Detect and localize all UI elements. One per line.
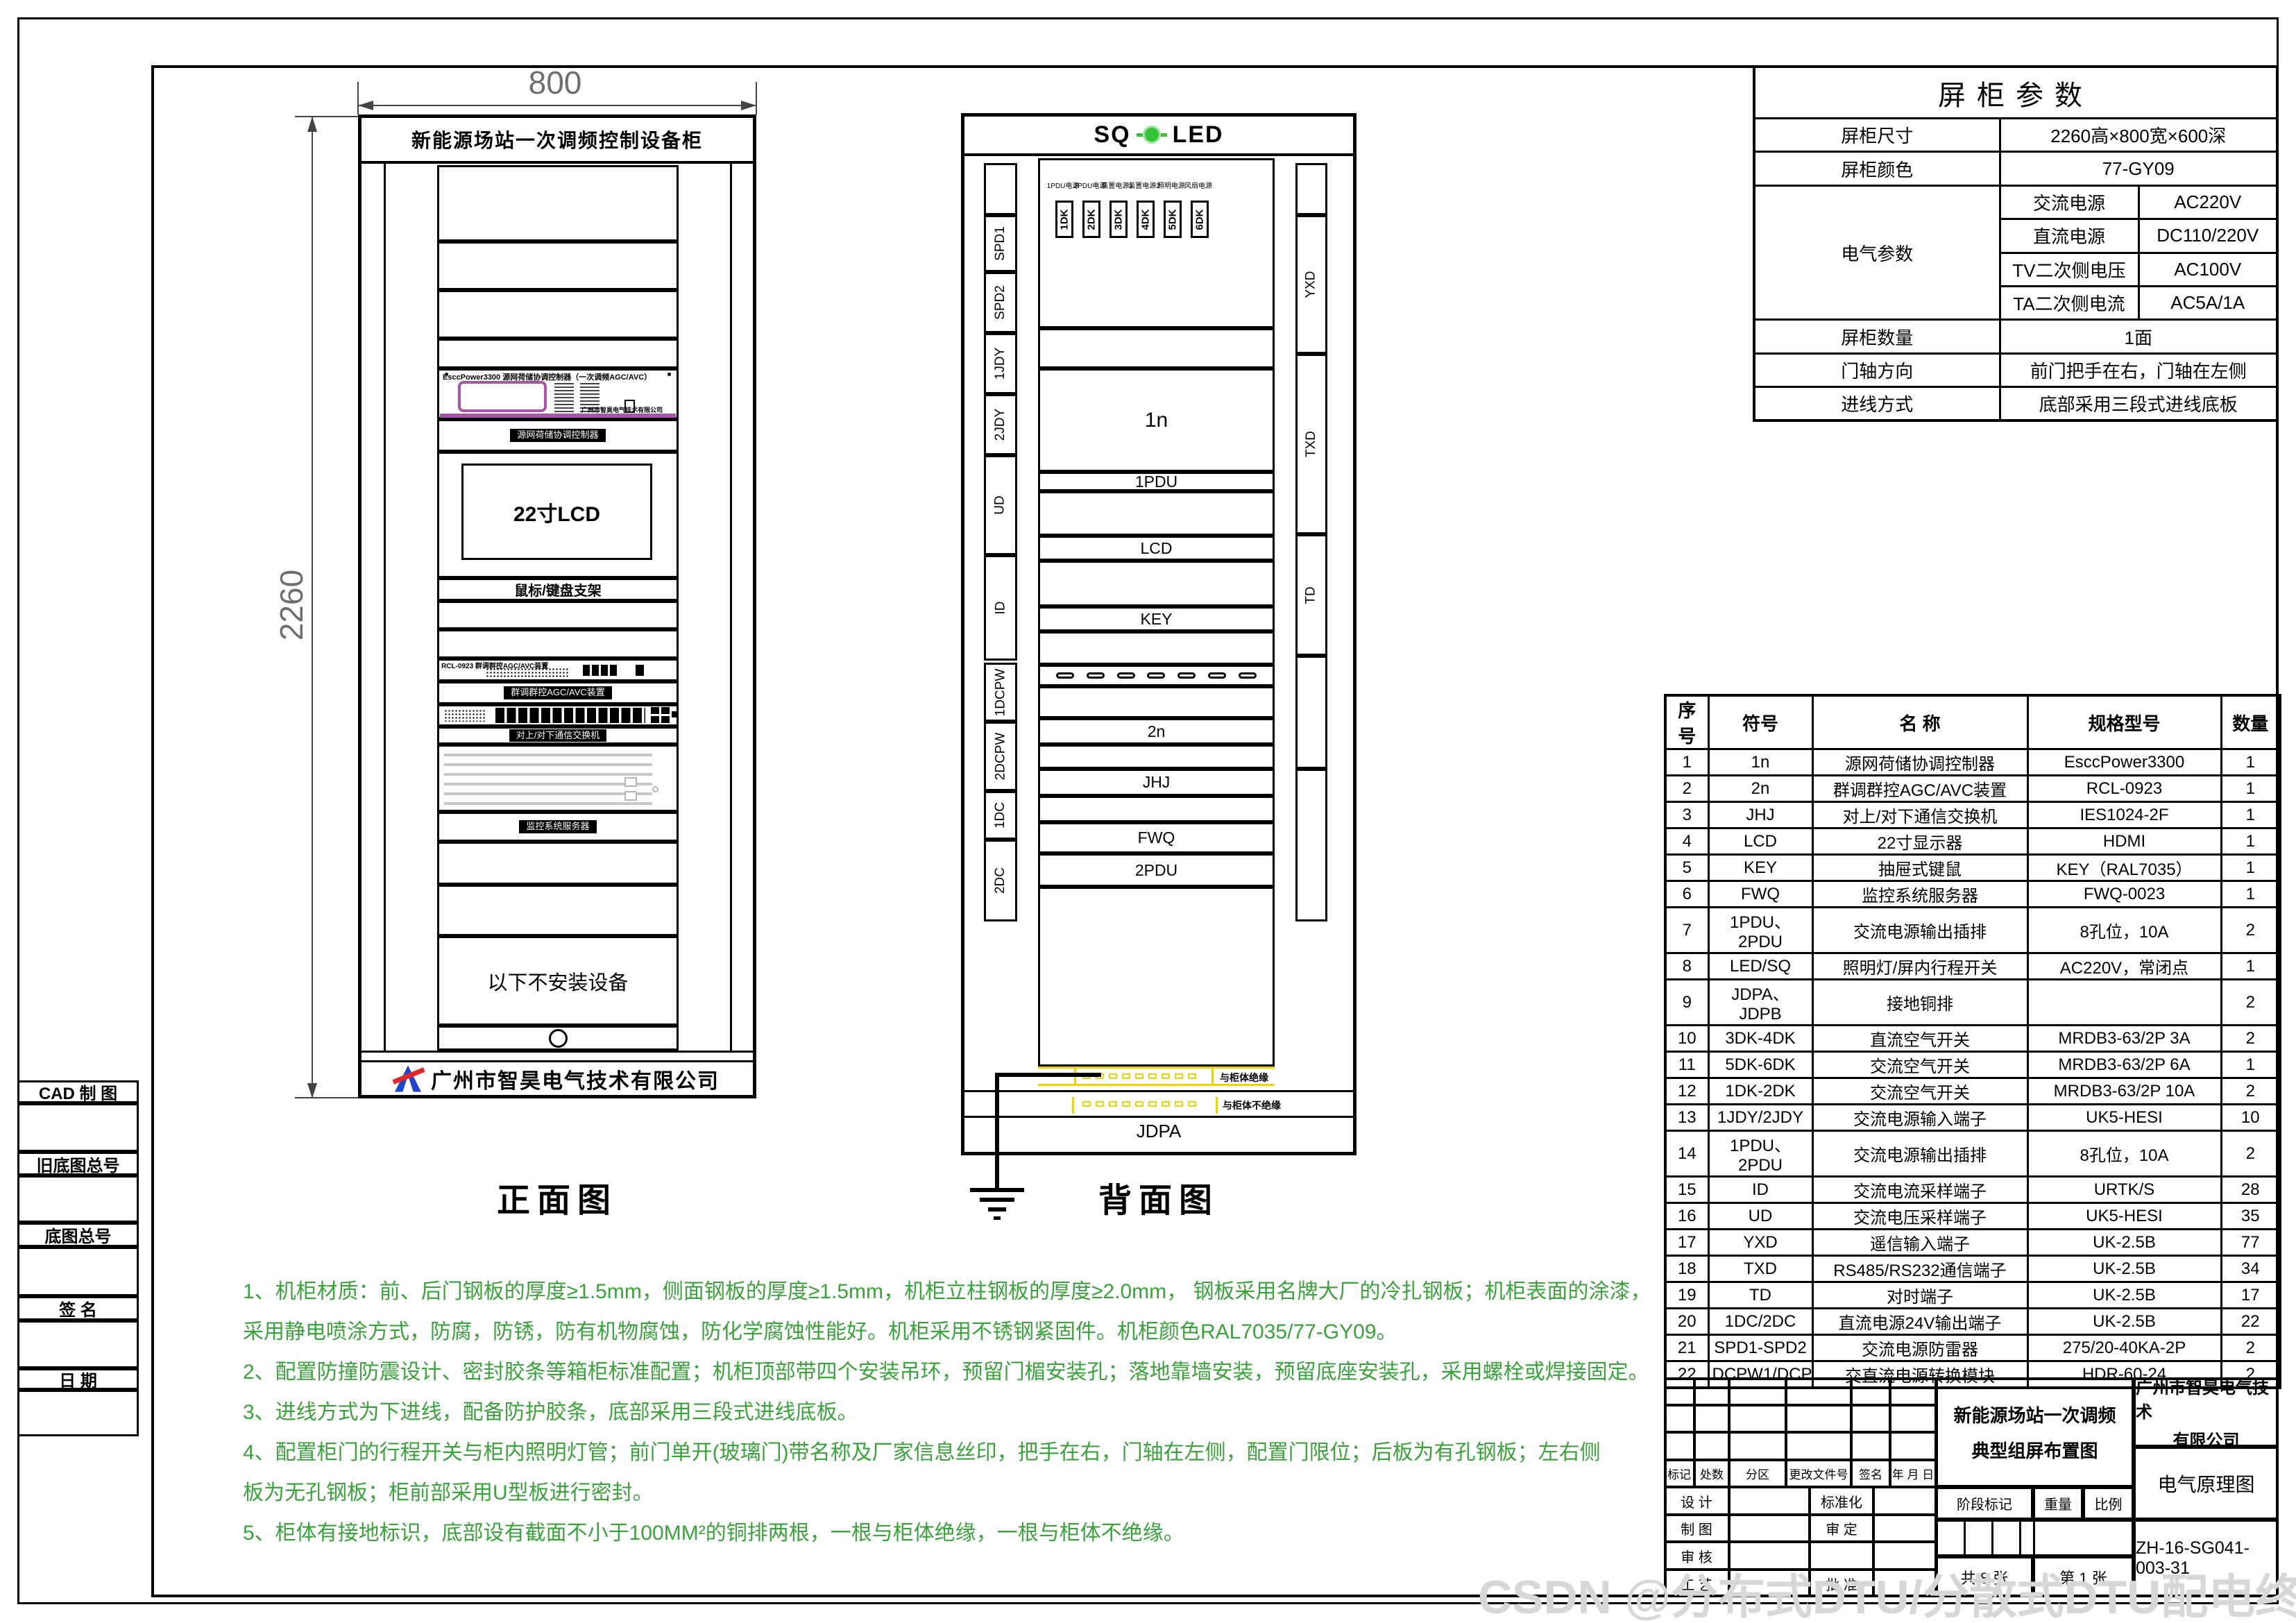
dim-ext-tick — [295, 116, 358, 117]
bom-header: 名 称 — [1812, 695, 2027, 749]
terminal-label: YXD — [1304, 271, 1319, 298]
front-blank-panel — [437, 241, 679, 290]
bom-row: 201DC/2DC直流电源24V输出端子UK-2.5B22 — [1665, 1309, 2280, 1335]
nameplate-comm: 对上/对下通信交换机 — [509, 729, 607, 742]
bom-cell: 1 — [2221, 829, 2280, 855]
terminal-label: 2DCPW — [993, 733, 1008, 781]
bom-cell: 17 — [1665, 1230, 1708, 1256]
bom-cell: UK5-HESI — [2027, 1105, 2221, 1131]
breaker-top-label: 风扇电源 — [1178, 180, 1218, 190]
ground-wire-v — [995, 1073, 999, 1188]
busbar-hole — [1148, 1101, 1157, 1107]
terminal-label: TD — [1304, 586, 1319, 604]
param-label: 电气参数 — [1754, 185, 2000, 320]
revision-cell — [1664, 1432, 1694, 1460]
bom-cell: 遥信输入端子 — [1812, 1230, 2027, 1256]
bom-cell: 22寸显示器 — [1812, 829, 2027, 855]
jdpa-label: JDPA — [1110, 1121, 1207, 1142]
left-terminal-box: 2DC — [984, 840, 1017, 921]
bom-cell: 8 — [1665, 953, 1708, 980]
stage-divider — [1991, 1520, 1993, 1556]
bom-cell: 交流电压采样端子 — [1812, 1203, 2027, 1230]
left-terminal-box: ID — [984, 555, 1017, 661]
weight-label-cell: 重量 — [2033, 1487, 2083, 1520]
revision-cell — [1890, 1377, 1936, 1405]
revision-header-cell: 更改文件号 — [1786, 1460, 1851, 1487]
left-terminal-box: 1DCPW — [984, 663, 1017, 722]
project-name-box: 新能源场站一次调频 典型组屏布置图 — [1936, 1377, 2134, 1487]
busbar-note: 与柜体绝缘 — [1220, 1071, 1268, 1085]
param-sub-label: TA二次侧电流 — [2000, 286, 2138, 319]
note-line: 4、配置柜门的行程开关与柜内照明灯管；前门单开(玻璃门)带名称及厂家信息丝印，把… — [243, 1435, 1601, 1465]
bom-cell: 4 — [1665, 829, 1708, 855]
bom-cell: 1PDU、2PDU — [1708, 908, 1812, 953]
revision-cell — [1786, 1405, 1851, 1432]
revision-cell — [1664, 1405, 1694, 1432]
bom-cell: 10 — [1665, 1026, 1708, 1052]
bom-header: 数量 — [2221, 695, 2280, 749]
comm-port — [651, 707, 659, 714]
bom-cell: 28 — [2221, 1177, 2280, 1203]
signature-cell: 制 图 — [1664, 1515, 1729, 1542]
bom-cell: 17 — [2221, 1282, 2280, 1309]
controller-screen — [458, 381, 547, 412]
back-section: KEY — [1038, 606, 1275, 631]
bom-cell: IES1024-2F — [2027, 802, 2221, 829]
comm-port — [651, 716, 659, 723]
bom-cell: ID — [1708, 1177, 1812, 1203]
param-label: 屏柜尺寸 — [1754, 119, 2000, 152]
bom-cell: 交流电流采样端子 — [1812, 1177, 2027, 1203]
bom-cell: 34 — [2221, 1256, 2280, 1282]
back-blank-section — [1038, 887, 1275, 1067]
bom-cell: 1 — [1665, 749, 1708, 776]
bom-cell: 5DK-6DK — [1708, 1052, 1812, 1078]
bom-cell: 对上/对下通信交换机 — [1812, 802, 2027, 829]
bom-cell: TXD — [1708, 1256, 1812, 1282]
bom-row: 5KEY抽屉式键鼠KEY（RAL7035）1 — [1665, 855, 2280, 881]
busbar-tick — [1072, 1097, 1074, 1114]
busbar-tick — [1211, 1069, 1214, 1084]
busbar-hole — [1135, 1073, 1143, 1079]
ground-symbol-stroke — [994, 1216, 1001, 1220]
screw-dot — [667, 373, 671, 376]
bom-cell: 19 — [1665, 1282, 1708, 1309]
revision-cell — [1694, 1405, 1729, 1432]
bom-cell: UK-2.5B — [2027, 1309, 2221, 1335]
ethernet-port — [636, 665, 644, 676]
revision-cell — [1729, 1432, 1786, 1460]
busbar-hole — [1122, 1073, 1130, 1079]
project-name-line1: 新能源场站一次调频 — [1953, 1402, 2116, 1427]
note-line: 3、进线方式为下进线，配备防护胶条，底部采用三段式进线底板。 — [243, 1395, 858, 1425]
project-name-line2: 典型组屏布置图 — [1971, 1437, 2098, 1463]
left-terminal-box: 2DCPW — [984, 722, 1017, 791]
stage-label-cell: 阶段标记 — [1936, 1487, 2033, 1520]
front-view-caption: 正面图 — [481, 1173, 633, 1221]
bom-cell: 2 — [2221, 980, 2280, 1026]
bom-cell: HDMI — [2027, 829, 2221, 855]
breaker-box: 3DK — [1109, 201, 1128, 238]
bom-cell: 275/20-40KA-2P — [2027, 1335, 2221, 1361]
bom-row: 19TD对时端子UK-2.5B17 — [1665, 1282, 2280, 1309]
revision-cell — [1694, 1432, 1729, 1460]
nameplate-agc: 群调群控AGC/AVC装置 — [504, 686, 612, 699]
param-sub-value: AC100V — [2138, 253, 2277, 286]
comm-port — [672, 711, 677, 717]
watermark: CSDN @分布式DTU/分散式DTU配电终端 — [1478, 1558, 2296, 1623]
bom-cell: 8孔位，10A — [2027, 1131, 2221, 1177]
front-bottom-strip — [362, 1051, 753, 1062]
bom-row: 9JDPA、JDPB接地铜排2 — [1665, 980, 2280, 1026]
bom-cell: 1DK-2DK — [1708, 1078, 1812, 1105]
bom-cell: 9 — [1665, 980, 1708, 1026]
sq-label: SQ — [1094, 121, 1130, 148]
front-door-line — [730, 164, 732, 1051]
signature-cell — [1873, 1515, 1936, 1542]
revision-cell — [1851, 1405, 1890, 1432]
busbar-tick — [1216, 1097, 1218, 1114]
bom-header: 符号 — [1708, 695, 1812, 749]
bom-row: 131JDY/2JDY交流电源输入端子UK5-HESI10 — [1665, 1105, 2280, 1131]
signature-cell: 标准化 — [1810, 1487, 1873, 1515]
bom-cell: TD — [1708, 1282, 1812, 1309]
side-empty-box — [17, 1175, 139, 1223]
bom-cell: KEY（RAL7035） — [2027, 855, 2221, 881]
front-brand-band: 广州市智昊电气技术有限公司 — [362, 1062, 753, 1095]
right-terminal-box — [1295, 769, 1327, 921]
front-width-dim-line — [358, 105, 756, 106]
param-value: 1面 — [2000, 320, 2277, 353]
front-nameplate-band: 监控系统服务器 — [437, 812, 679, 842]
bom-cell: RCL-0923 — [2027, 776, 2221, 802]
note-line: 5、柜体有接地标识，底部设有截面不小于100MM²的铜排两根，一根与柜体绝缘，一… — [243, 1515, 1184, 1546]
server-button — [652, 786, 658, 792]
left-terminal-box: SPD1 — [984, 215, 1017, 272]
params-title: 屏柜参数 — [1754, 67, 2277, 119]
dim-ext-tick — [357, 82, 359, 114]
side-label-box: 旧底图总号 — [17, 1152, 139, 1175]
busbar-hole — [1082, 1101, 1091, 1107]
bom-cell: 照明灯/屏内行程开关 — [1812, 953, 2027, 980]
front-blank-panel — [437, 601, 679, 629]
param-label: 门轴方向 — [1754, 353, 2000, 386]
revision-cell — [1851, 1432, 1890, 1460]
revision-cell — [1664, 1377, 1694, 1405]
revision-cell — [1729, 1405, 1786, 1432]
bom-cell: 1 — [2221, 776, 2280, 802]
terminal-row — [495, 708, 645, 723]
note-line: 2、配置防撞防震设计、密封胶条等箱柜标准配置；机柜顶部带四个安装吊环，预留门楣安… — [243, 1354, 1649, 1385]
bom-cell: AC220V，常闭点 — [2027, 953, 2221, 980]
busbar-note: 与柜体不绝缘 — [1223, 1098, 1281, 1112]
left-terminal-box: UD — [984, 455, 1017, 555]
param-value: 77-GY09 — [2000, 152, 2277, 185]
note-line: 采用静电喷涂方式，防腐，防锈，防有机物腐蚀，防化学腐蚀性能好。机柜采用不锈钢紧固… — [243, 1314, 1397, 1345]
bom-cell: 10 — [2221, 1105, 2280, 1131]
signature-cell: 审 定 — [1810, 1515, 1873, 1542]
bom-row: 15ID交流电流采样端子URTK/S28 — [1665, 1177, 2280, 1203]
bom-row: 141PDU、2PDU交流电源输出插排8孔位，10A2 — [1665, 1131, 2280, 1177]
bom-cell: 接地铜排 — [1812, 980, 2027, 1026]
bom-cell: 交流电源输出插排 — [1812, 1131, 2027, 1177]
cabinet-params-table: 屏柜参数屏柜尺寸2260高×800宽×600深屏柜颜色77-GY09电气参数交流… — [1753, 65, 2279, 422]
param-sub-label: 直流电源 — [2000, 219, 2138, 253]
controller-led-column — [554, 382, 574, 412]
vent-slot — [1056, 672, 1074, 679]
param-value: 前门把手在右，门轴在左侧 — [2000, 353, 2277, 386]
back-blank-section — [1038, 796, 1275, 822]
bom-row: 6FWQ监控系统服务器FWQ-00231 — [1665, 881, 2280, 908]
server-port — [624, 777, 637, 787]
right-terminal-box — [1295, 656, 1327, 769]
bom-row: 16UD交流电压采样端子UK5-HESI35 — [1665, 1203, 2280, 1230]
bom-cell: 交流电源输出插排 — [1812, 908, 2027, 953]
param-value: 底部采用三段式进线底板 — [2000, 387, 2277, 420]
breaker-label: 3DK — [1113, 209, 1125, 230]
bom-cell: 7 — [1665, 908, 1708, 953]
company-name: 广州市智昊电气技术有限公司 — [431, 1064, 720, 1094]
revision-cell — [1890, 1405, 1936, 1432]
bom-cell: KEY — [1708, 855, 1812, 881]
breaker-label: 5DK — [1167, 209, 1179, 230]
signature-cell — [1873, 1487, 1936, 1515]
bom-cell: 15 — [1665, 1177, 1708, 1203]
front-nameplate-band: 群调群控AGC/AVC装置 — [437, 681, 679, 704]
bom-row: 103DK-4DK直流空气开关MRDB3-63/2P 3A2 — [1665, 1026, 2280, 1052]
breaker-label: 4DK — [1140, 209, 1152, 230]
nameplate-server: 监控系统服务器 — [519, 820, 596, 833]
bom-cell: 3 — [1665, 802, 1708, 829]
bom-cell: URTK/S — [2027, 1177, 2221, 1203]
bom-row: 22n群调群控AGC/AVC装置RCL-09231 — [1665, 776, 2280, 802]
stage-divider — [2019, 1520, 2021, 1556]
bom-cell: 1 — [2221, 749, 2280, 776]
bom-cell: 1DC/2DC — [1708, 1309, 1812, 1335]
revision-header-cell: 签名 — [1851, 1460, 1890, 1487]
left-terminal-box: 2JDY — [984, 394, 1017, 455]
comm-vent-dots — [444, 709, 486, 722]
vent-slot — [1117, 672, 1135, 679]
bom-cell: 8孔位，10A — [2027, 908, 2221, 953]
right-terminal-box — [1295, 163, 1327, 215]
bom-cell: JDPA、JDPB — [1708, 980, 1812, 1026]
front-height-dim-label: 2260 — [273, 563, 310, 647]
param-label: 进线方式 — [1754, 387, 2000, 420]
back-view-caption: 背面图 — [1082, 1173, 1235, 1221]
bom-cell: 2 — [2221, 1335, 2280, 1361]
breaker-section: 1PDU电源2PDU电源装置电源1装置电源2照明电源风扇电源1DK2DK3DK4… — [1038, 158, 1275, 328]
front-nameplate-band: 对上/对下通信交换机 — [437, 726, 679, 745]
back-section: LCD — [1038, 536, 1275, 561]
bom-cell: 源网荷储协调控制器 — [1812, 749, 2027, 776]
revision-cell — [1729, 1377, 1786, 1405]
back-blank-section — [1038, 745, 1275, 769]
ethernet-ports — [583, 665, 619, 676]
bom-cell: 交流空气开关 — [1812, 1052, 2027, 1078]
server-port — [624, 791, 637, 801]
busbar-hole — [1148, 1073, 1157, 1079]
bom-cell: 1n — [1708, 749, 1812, 776]
bom-row: 3JHJ对上/对下通信交换机IES1024-2F1 — [1665, 802, 2280, 829]
front-blank-panel — [437, 339, 679, 368]
vent-slot — [1147, 672, 1165, 679]
revision-header-cell: 标记 — [1664, 1460, 1694, 1487]
back-blank-section — [1038, 561, 1275, 606]
side-empty-box — [17, 1320, 139, 1368]
terminal-label: ID — [993, 602, 1008, 615]
bom-cell: 2 — [2221, 1131, 2280, 1177]
busbar-hole — [1175, 1073, 1183, 1079]
terminal-label: SPD1 — [993, 226, 1008, 261]
bom-cell: 13 — [1665, 1105, 1708, 1131]
terminal-label: 1DCPW — [993, 668, 1008, 716]
dim-arrow-up — [307, 117, 317, 132]
side-empty-box — [17, 1390, 139, 1436]
company-box: 广州市智昊电气技术 有限公司 — [2134, 1377, 2279, 1447]
front-blank-panel — [437, 629, 679, 658]
bom-cell: 2 — [2221, 1078, 2280, 1105]
bom-cell: 20 — [1665, 1309, 1708, 1335]
door-lock-circle — [549, 1029, 568, 1048]
bom-cell: 交流电源输入端子 — [1812, 1105, 2027, 1131]
front-blank-panel — [437, 885, 679, 936]
bom-cell: FWQ-0023 — [2027, 881, 2221, 908]
param-sub-value: AC5A/1A — [2138, 286, 2277, 319]
bom-cell: 交流空气开关 — [1812, 1078, 2027, 1105]
back-blank-section — [1038, 686, 1275, 718]
front-door-line — [384, 164, 386, 1051]
back-section: JHJ — [1038, 769, 1275, 796]
nameplate-controller: 源网荷储协调控制器 — [510, 429, 605, 442]
dim-ext-tick — [756, 82, 757, 114]
bom-header: 序号 — [1665, 695, 1708, 749]
front-blank-panel — [437, 290, 679, 339]
bom-cell: 18 — [1665, 1256, 1708, 1282]
scale-label-cell: 比例 — [2083, 1487, 2134, 1520]
front-blank-panel — [437, 165, 679, 241]
bom-cell: 1 — [2221, 881, 2280, 908]
vent-slot — [1177, 672, 1196, 679]
comm-port — [661, 716, 670, 723]
bom-row: 21SPD1-SPD2交流电源防雷器275/20-40KA-2P2 — [1665, 1335, 2280, 1361]
doc-type-box: 电气原理图 — [2134, 1447, 2279, 1520]
dim-arrow-down — [307, 1083, 317, 1098]
bom-cell: SPD1-SPD2 — [1708, 1335, 1812, 1361]
bom-cell: LED/SQ — [1708, 953, 1812, 980]
side-label-box: 日 期 — [17, 1368, 139, 1390]
bom-row: 115DK-6DK交流空气开关MRDB3-63/2P 6A1 — [1665, 1052, 2280, 1078]
param-label: 屏柜颜色 — [1754, 152, 2000, 185]
vent-slot — [1087, 672, 1105, 679]
breaker-box: 4DK — [1137, 201, 1155, 238]
revision-cell — [1786, 1377, 1851, 1405]
bom-cell: 35 — [2221, 1203, 2280, 1230]
back-section: 2n — [1038, 718, 1275, 745]
bom-cell: 对时端子 — [1812, 1282, 2027, 1309]
left-terminal-box: 1JDY — [984, 333, 1017, 394]
param-sub-label: TV二次侧电压 — [2000, 253, 2138, 286]
bom-cell: 5 — [1665, 855, 1708, 881]
bom-cell: UK-2.5B — [2027, 1282, 2221, 1309]
bom-cell: JHJ — [1708, 802, 1812, 829]
bom-cell: 交流电源防雷器 — [1812, 1335, 2027, 1361]
param-label: 屏柜数量 — [1754, 320, 2000, 353]
bom-cell: EsccPower3300 — [2027, 749, 2221, 776]
bom-header: 规格型号 — [2027, 695, 2221, 749]
param-sub-value: DC110/220V — [2138, 219, 2277, 253]
busbar-hole — [1135, 1101, 1143, 1107]
dim-arrow-right — [741, 101, 756, 110]
front-height-dim-line — [312, 117, 313, 1098]
bom-cell: MRDB3-63/2P 10A — [2027, 1078, 2221, 1105]
bom-cell: 21 — [1665, 1335, 1708, 1361]
back-section: 1PDU — [1038, 472, 1275, 491]
busbar-hole — [1096, 1101, 1104, 1107]
back-blank-section — [1038, 491, 1275, 536]
back-section: 1n — [1038, 368, 1275, 472]
terminal-label: SPD2 — [993, 285, 1008, 320]
screw-dot — [445, 373, 448, 376]
back-cabinet-header: SQ LED — [964, 117, 1353, 156]
drawing-sheet: 800 2260 新能源场站一次调频控制设备柜 EsccPower3300 源网… — [0, 0, 2296, 1623]
ground-symbol-stroke — [970, 1188, 1024, 1192]
handle-panel — [437, 1026, 679, 1051]
ground-wire-h — [997, 1073, 1101, 1077]
busbar-hole — [1162, 1073, 1170, 1079]
bom-cell: 1 — [2221, 802, 2280, 829]
back-blank-section — [1038, 328, 1275, 368]
dim-ext-tick — [295, 1097, 358, 1098]
bom-row: 11n源网荷储协调控制器EsccPower33001 — [1665, 749, 2280, 776]
param-sub-label: 交流电源 — [2000, 185, 2138, 219]
front-cabinet-header: 新能源场站一次调频控制设备柜 — [362, 118, 753, 164]
bom-cell: 2n — [1708, 776, 1812, 802]
bom-cell: MRDB3-63/2P 3A — [2027, 1026, 2221, 1052]
vent-slot — [1239, 672, 1257, 679]
signature-cell — [1729, 1487, 1810, 1515]
bill-of-materials-table: 序号符号名 称规格型号数量11n源网荷储协调控制器EsccPower330012… — [1664, 694, 2281, 1389]
bom-cell: 1 — [2221, 953, 2280, 980]
bom-cell: 14 — [1665, 1131, 1708, 1177]
bom-row: 17YXD遥信输入端子UK-2.5B77 — [1665, 1230, 2280, 1256]
signature-cell: 设 计 — [1664, 1487, 1729, 1515]
bom-cell: 6 — [1665, 881, 1708, 908]
lamp-icon — [1138, 124, 1166, 147]
right-terminal-box: TD — [1295, 534, 1327, 656]
company-line1: 广州市智昊电气技术 — [2136, 1374, 2277, 1422]
bom-cell: 16 — [1665, 1203, 1708, 1230]
vent-slot — [1208, 672, 1226, 679]
bom-cell: 1 — [2221, 855, 2280, 881]
busbar-hole — [1188, 1101, 1196, 1107]
ground-symbol-stroke — [988, 1207, 1006, 1212]
bom-row: 8LED/SQ照明灯/屏内行程开关AC220V，常闭点1 — [1665, 953, 2280, 980]
revision-cell — [1694, 1377, 1729, 1405]
bom-cell: 2 — [2221, 1026, 2280, 1052]
bom-cell: UK5-HESI — [2027, 1203, 2221, 1230]
bom-cell: 抽屉式键鼠 — [1812, 855, 2027, 881]
right-terminal-box: TXD — [1295, 354, 1327, 534]
breaker-box: 1DK — [1055, 201, 1073, 238]
bom-cell: 3DK-4DK — [1708, 1026, 1812, 1052]
signature-cell — [1729, 1515, 1810, 1542]
revision-header-cell: 分区 — [1729, 1460, 1786, 1487]
bom-row: 4LCD22寸显示器HDMI1 — [1665, 829, 2280, 855]
bom-cell: YXD — [1708, 1230, 1812, 1256]
note-line: 1、机柜材质：前、后门钢板的厚度≥1.5mm，侧面钢板的厚度≥1.5mm，机柜立… — [243, 1274, 1651, 1305]
bom-cell: 1 — [2221, 1052, 2280, 1078]
